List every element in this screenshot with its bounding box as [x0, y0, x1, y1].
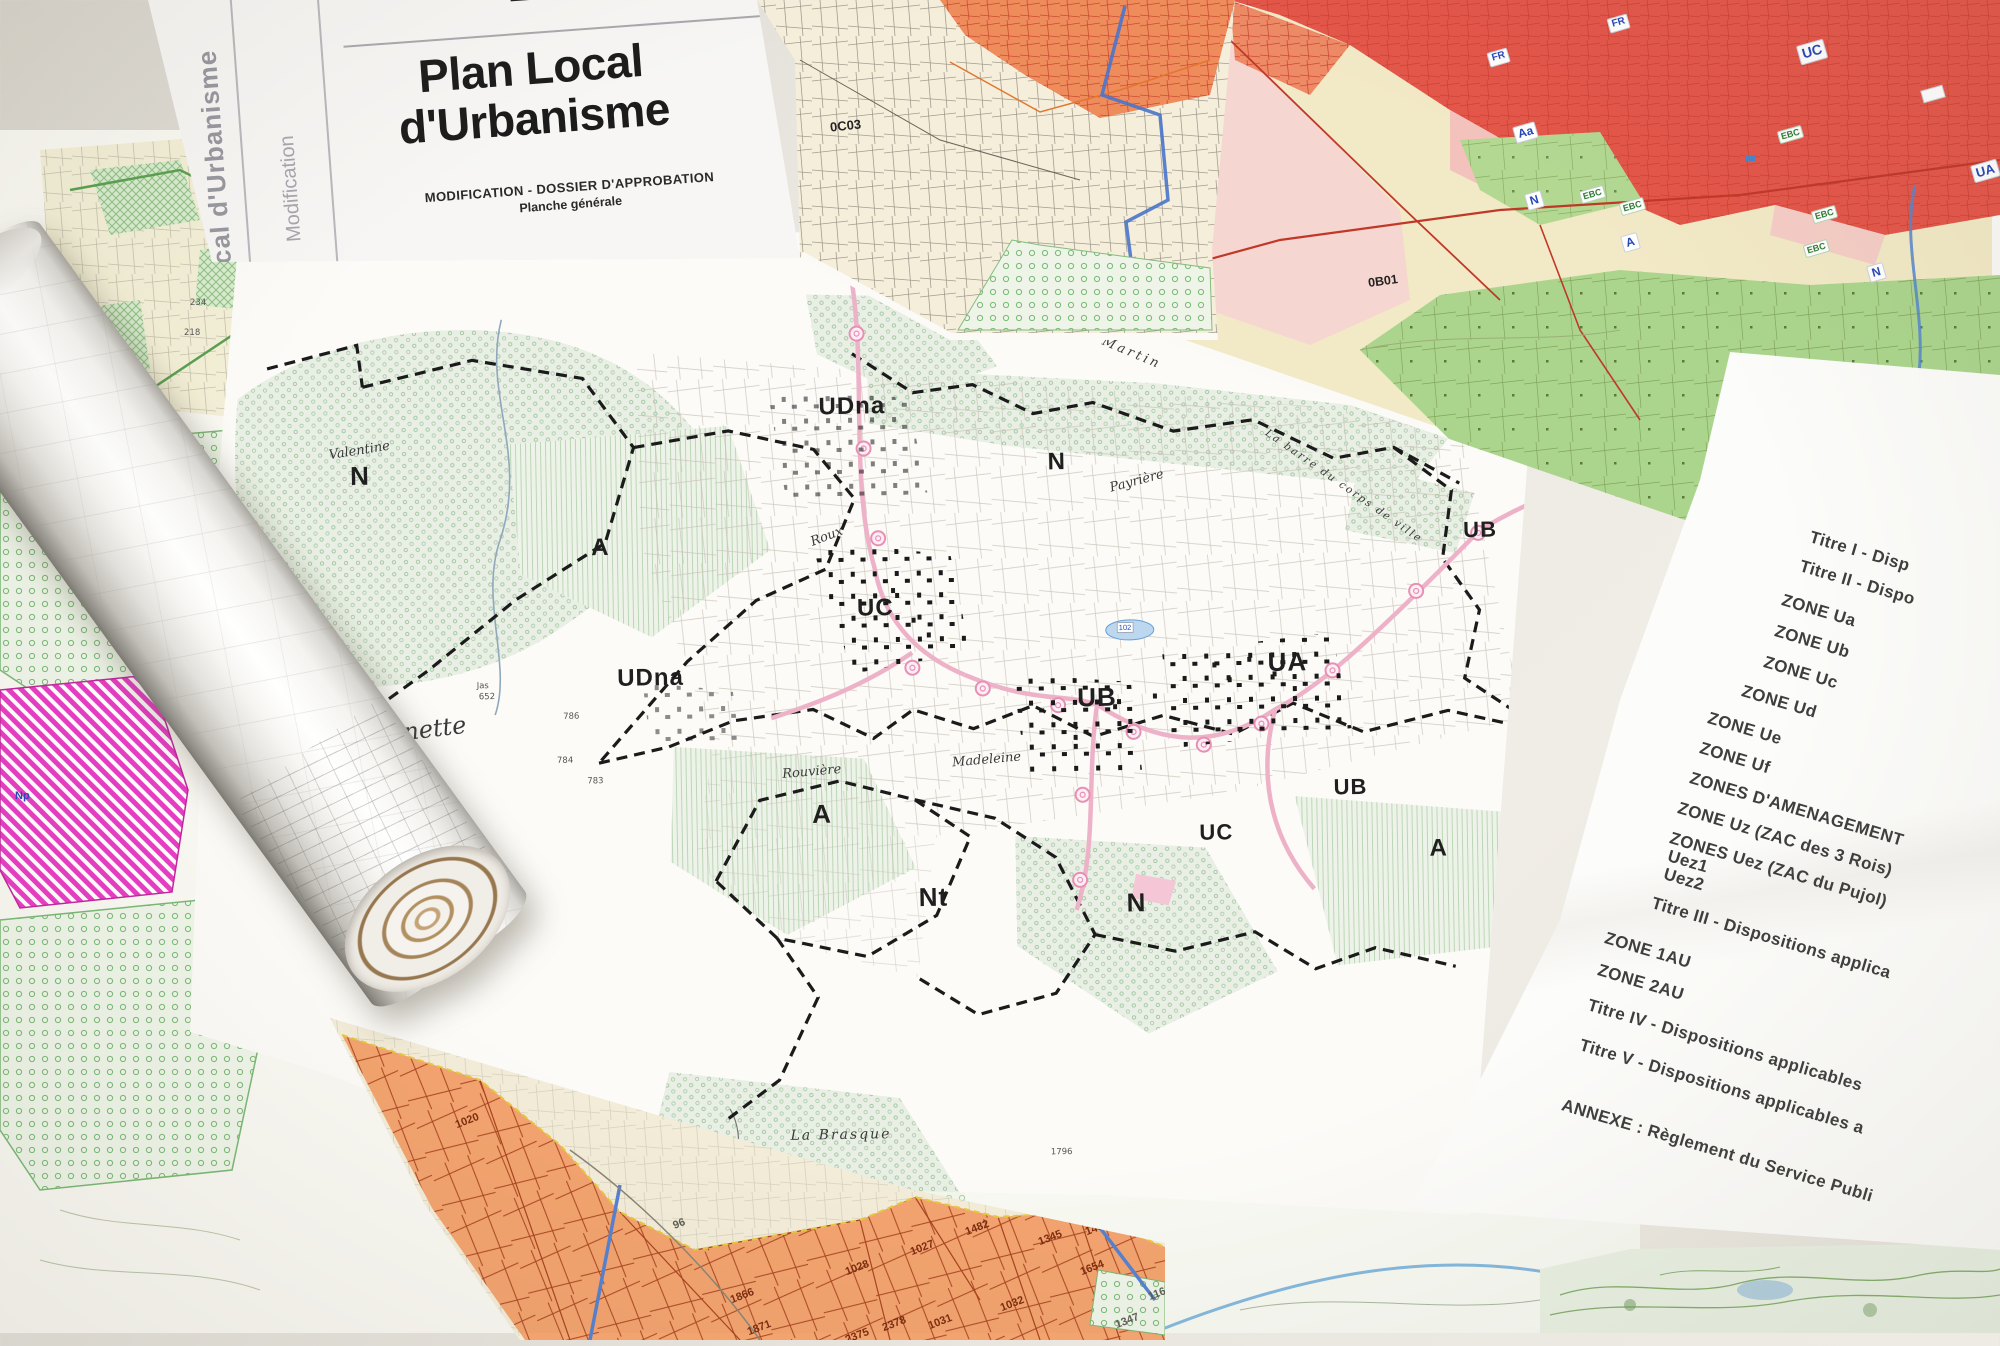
- subtitle-block: MODIFICATION - DOSSIER D'APPROBATION Pla…: [369, 165, 770, 226]
- zone-label-nt: Nt: [918, 882, 948, 914]
- title-page-inner: cal d'Urbanisme Modification Plan Local …: [131, 0, 819, 297]
- zone-label-ub: UB: [1333, 774, 1367, 801]
- zone-label-n: N: [1047, 448, 1066, 476]
- zone-label-a: A: [1429, 834, 1448, 862]
- main-title: Plan Local d'Urbanisme: [329, 30, 735, 158]
- rolled-map: [0, 140, 650, 1060]
- rolled-map-tube: [0, 210, 535, 1017]
- sheet-code-0c03: 0C03: [829, 116, 861, 134]
- truncated-header-fragment: [510, 0, 660, 1]
- parcel-number: 1796: [1051, 1147, 1073, 1157]
- place-label-la-brasque: La Brasque: [790, 1126, 891, 1144]
- zone-label-uc: UC: [857, 594, 894, 623]
- zone-label-ub: UB: [1463, 516, 1497, 543]
- zone-label-uc: UC: [1199, 819, 1233, 846]
- zone-label-a: A: [812, 799, 832, 830]
- zone-label-n: N: [1126, 887, 1146, 918]
- zone-label-ub: UB: [1077, 682, 1117, 714]
- photo-of-plu-documents: { "title_sheet": { "side_label": "cal d'…: [0, 0, 2000, 1333]
- title-page-sheet: cal d'Urbanisme Modification Plan Local …: [140, 0, 810, 272]
- pond-label: 102: [1117, 622, 1134, 633]
- zone-label-ua: UA: [1267, 646, 1307, 678]
- sidebar-vertical-subtitle: Modification: [276, 135, 307, 243]
- zone-label-udna: UDna: [818, 392, 885, 421]
